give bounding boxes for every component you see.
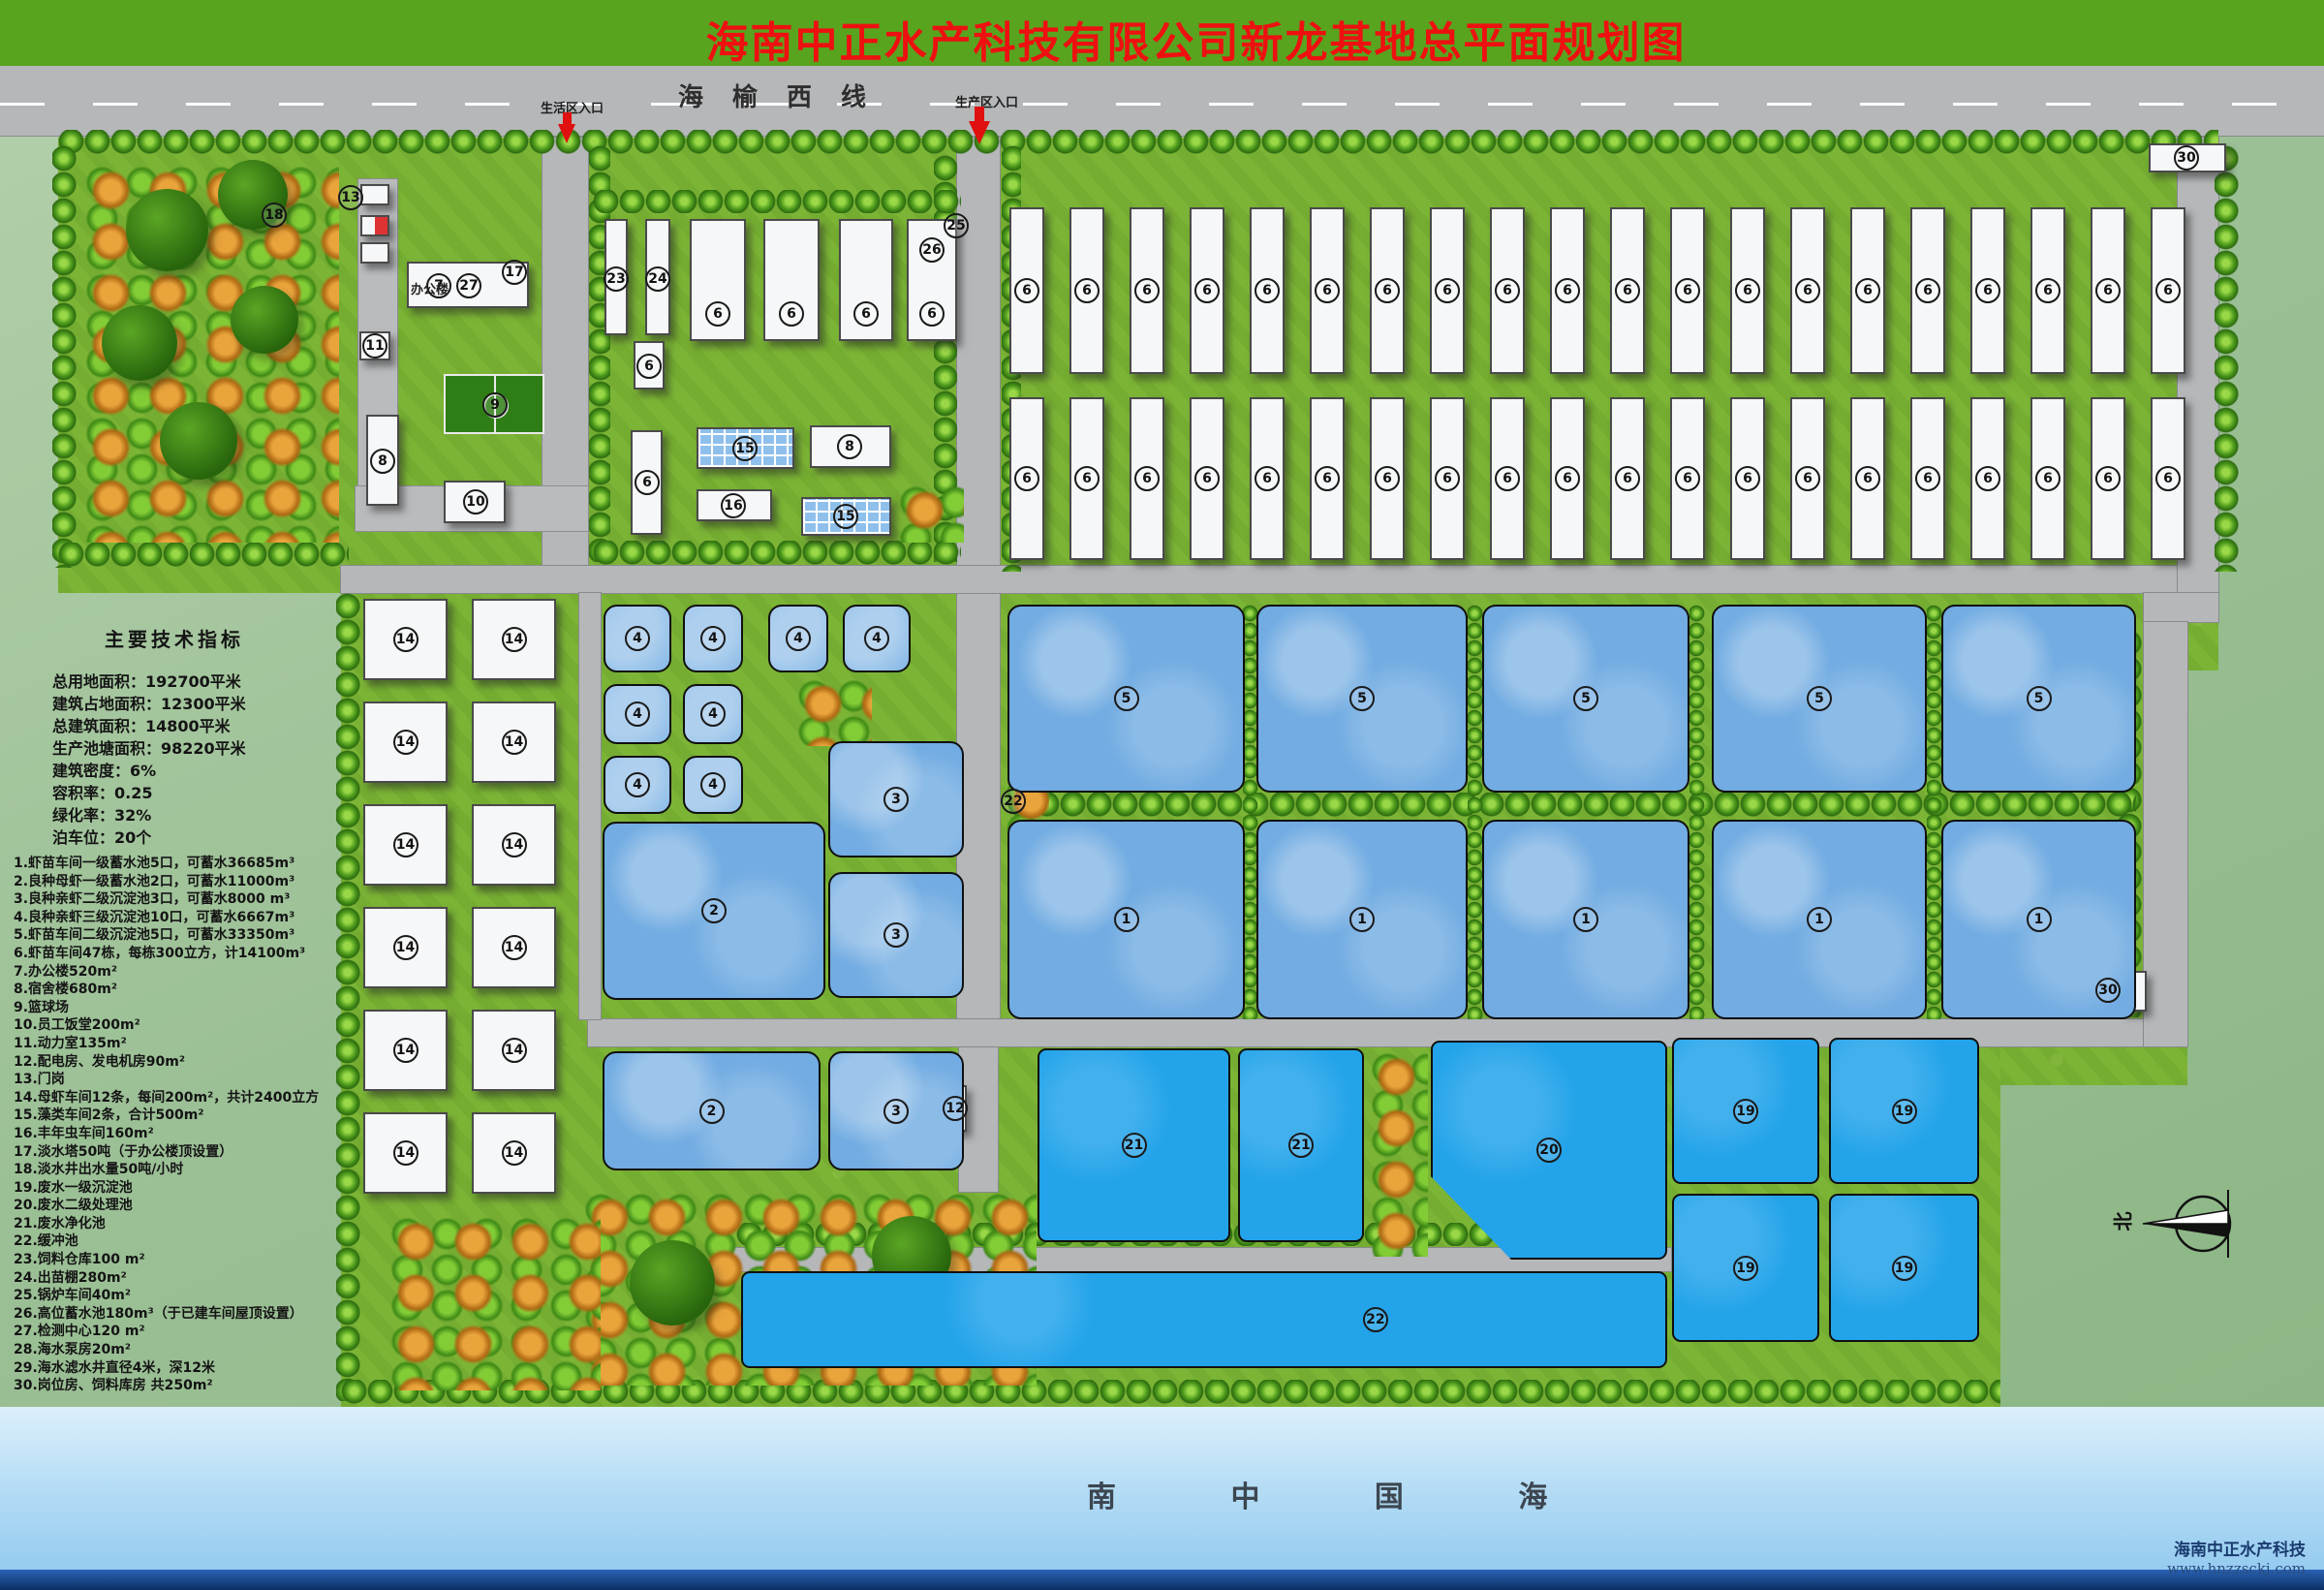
road-center-line (0, 103, 2324, 106)
legend-item: 10.员工饭堂200m² (14, 1016, 319, 1035)
tree-cluster-southwest (387, 1216, 601, 1390)
dormitory-building (366, 415, 399, 506)
tree-row-top (58, 130, 2218, 155)
shrimp-workshop-building (839, 219, 893, 341)
legend-item: 28.海水泵房20m² (14, 1341, 319, 1359)
legend-item: 6.虾苗车间47栋，每栋300立方，计14100m³ (14, 945, 319, 963)
dormitory-building-2 (810, 425, 891, 468)
indicator-line: 容积率：0.25 (52, 782, 246, 804)
tree-col-pond-gap-4 (1927, 605, 1942, 1019)
legend-item: 12.配电房、发电机房90m² (14, 1053, 319, 1072)
logo-company-name: 海南中正水产科技 (2083, 1536, 2306, 1560)
legend-list: 1.虾苗车间一级蓄水池5口，可蓄水36685m³2.良种母虾一级蓄水池2口，可蓄… (14, 855, 319, 1395)
bottom-strip (0, 1570, 2324, 1590)
office-label: 办公楼 (411, 279, 449, 297)
legend-item: 21.废水净化池 (14, 1215, 319, 1233)
court-center-circle (483, 393, 509, 419)
indicator-line: 建筑占地面积：12300平米 (52, 693, 246, 715)
legend-item: 16.丰年虫车间160m² (14, 1125, 319, 1143)
tree-col-pond-gap-2 (1468, 605, 1483, 1019)
road-horizontal-lower (588, 1019, 2187, 1046)
legend-item: 25.锅炉车间40m² (14, 1287, 319, 1305)
gate-hut-3 (360, 242, 389, 264)
road-east-corner (2144, 593, 2218, 622)
company-logo: 海南中正水产科技 www.hnzzsckj.com (2083, 1536, 2315, 1577)
legend-item: 24.出苗棚280m² (14, 1269, 319, 1288)
legend-item: 5.虾苗车间二级沉淀池5口，可蓄水33350m³ (14, 926, 319, 945)
tree-row-central-top (593, 190, 961, 213)
basketball-court (444, 374, 544, 434)
road-east-lower (2144, 622, 2187, 1046)
legend-item: 9.篮球场 (14, 999, 319, 1017)
big-tree (160, 402, 237, 480)
guard-store-building-north (2149, 143, 2226, 172)
site-plan-canvas: 海南中正水产科技有限公司新龙基地总平面规划图 海榆西线 生活区入口 生产区入口 (0, 0, 2324, 1590)
road-horizontal-upper (341, 566, 2218, 593)
title-banner: 海南中正水产科技有限公司新龙基地总平面规划图 (0, 0, 2324, 66)
legend-item: 11.动力室135m² (14, 1035, 319, 1053)
indicators-title: 主要技术指标 (105, 624, 244, 652)
big-tree (126, 189, 208, 271)
big-tree (765, 1289, 839, 1362)
legend-item: 26.高位蓄水池180m³（于已建车间屋顶设置） (14, 1305, 319, 1324)
legend-item: 4.良种亲虾三级沉淀池10口，可蓄水6667m³ (14, 909, 319, 927)
road-east-upper (2178, 138, 2218, 593)
indicator-line: 总用地面积：192700平米 (52, 670, 246, 693)
production-entrance-label: 生产区入口 (955, 92, 1018, 110)
gate-hut-2 (360, 215, 389, 236)
tree-col-east (2215, 145, 2240, 572)
feed-warehouse-building (604, 219, 628, 335)
legend-item: 20.废水二级处理池 (14, 1197, 319, 1215)
tree-col-pond-gap-1 (1243, 605, 1258, 1019)
tree-col-west-lower (336, 593, 361, 1401)
canteen-building (444, 481, 506, 523)
legend-item: 7.办公楼520m² (14, 963, 319, 982)
highway-road (0, 66, 2324, 136)
tree-cluster-workshops (896, 484, 964, 543)
sea-label: 南 中 国 海 (1087, 1473, 1599, 1515)
indicator-line: 总建筑面积：14800平米 (52, 715, 246, 737)
indicator-line: 生产池塘面积：98220平米 (52, 737, 246, 760)
gate-hut-1 (360, 184, 389, 205)
legend-item: 3.良种亲虾二级沉淀池3口，可蓄水8000 m³ (14, 890, 319, 909)
algae-workshop-building (697, 427, 794, 469)
fry-shed-building (645, 219, 670, 335)
legend-item: 8.宿舍楼680m² (14, 981, 319, 999)
tree-row-pond-divider (1007, 793, 2136, 820)
shrimp-workshop-building (634, 341, 665, 390)
legend-item: 23.饲料仓库100 m² (14, 1251, 319, 1269)
tree-cluster-ponds (794, 678, 872, 746)
legend-item: 2.良种母虾一级蓄水池2口，可蓄水11000m³ (14, 873, 319, 891)
site-grass-southeast (2000, 1046, 2187, 1085)
production-entrance-arrow-head (969, 121, 990, 144)
indicator-line: 绿化率：32% (52, 804, 246, 826)
legend-item: 14.母虾车间12条，每间200m²，共计2400立方 (14, 1089, 319, 1107)
site-grass-middle (341, 593, 2187, 1046)
compass-north-label: 北 (2108, 1212, 2136, 1231)
living-entrance-arrow (563, 112, 572, 124)
living-entrance-label: 生活区入口 (541, 98, 604, 116)
guard-store-building-east (2122, 971, 2147, 1012)
production-entrance-arrow (975, 107, 984, 121)
legend-item: 13.门岗 (14, 1071, 319, 1089)
big-tree (231, 286, 298, 354)
legend-item: 29.海水滤水井直径4米，深12米 (14, 1359, 319, 1378)
shrimp-workshop-building (690, 219, 746, 341)
tree-row-central-bottom (593, 541, 961, 566)
big-tree (630, 1240, 715, 1325)
tree-col-west (52, 145, 77, 568)
big-tree (218, 160, 288, 230)
living-entrance-arrow-head (558, 124, 575, 143)
plan-title: 海南中正水产科技有限公司新龙基地总平面规划图 (0, 8, 2324, 70)
legend-item: 30.岗位房、饲料库房 共250m² (14, 1377, 319, 1395)
legend-item: 18.淡水井出水量50吨/小时 (14, 1161, 319, 1179)
legend-item: 1.虾苗车间一级蓄水池5口，可蓄水36685m³ (14, 855, 319, 873)
tree-row-forest-south (58, 543, 349, 568)
legend-item: 15.藻类车间2条，合计500m² (14, 1107, 319, 1125)
legend-item: 27.检测中心120 m² (14, 1323, 319, 1341)
tree-cluster-pond-strip (1368, 1051, 1428, 1257)
compass-icon (2131, 1190, 2238, 1258)
tree-col-road-b-east (1002, 145, 1021, 572)
algae-workshop-building (801, 497, 891, 536)
indicator-line: 泊车位：20个 (52, 826, 246, 849)
indicator-line: 建筑密度：6% (52, 760, 246, 782)
tree-col-pond-gap-3 (1689, 605, 1705, 1019)
road-name-label: 海榆西线 (678, 78, 895, 113)
tree-cluster-junction (1003, 775, 1049, 829)
road-west-lane (579, 593, 601, 1019)
brine-shrimp-workshop-building (697, 489, 772, 521)
legend-item: 22.缓冲池 (14, 1232, 319, 1251)
big-tree (872, 1216, 951, 1295)
shrimp-workshop-building (763, 219, 820, 341)
power-room-building (359, 331, 390, 360)
legend-item: 19.废水一级沉淀池 (14, 1179, 319, 1198)
logo-website: www.hnzzsckj.com (2083, 1560, 2306, 1577)
tree-col-east-lower (2118, 630, 2143, 1017)
generator-room-building (944, 1085, 967, 1132)
big-tree (102, 305, 177, 381)
indicators-list: 总用地面积：192700平米建筑占地面积：12300平米总建筑面积：14800平… (52, 670, 246, 849)
shrimp-workshop-building (907, 219, 957, 341)
legend-item: 17.淡水塔50吨（于办公楼顶设置） (14, 1143, 319, 1162)
shrimp-workshop-building (631, 430, 663, 535)
